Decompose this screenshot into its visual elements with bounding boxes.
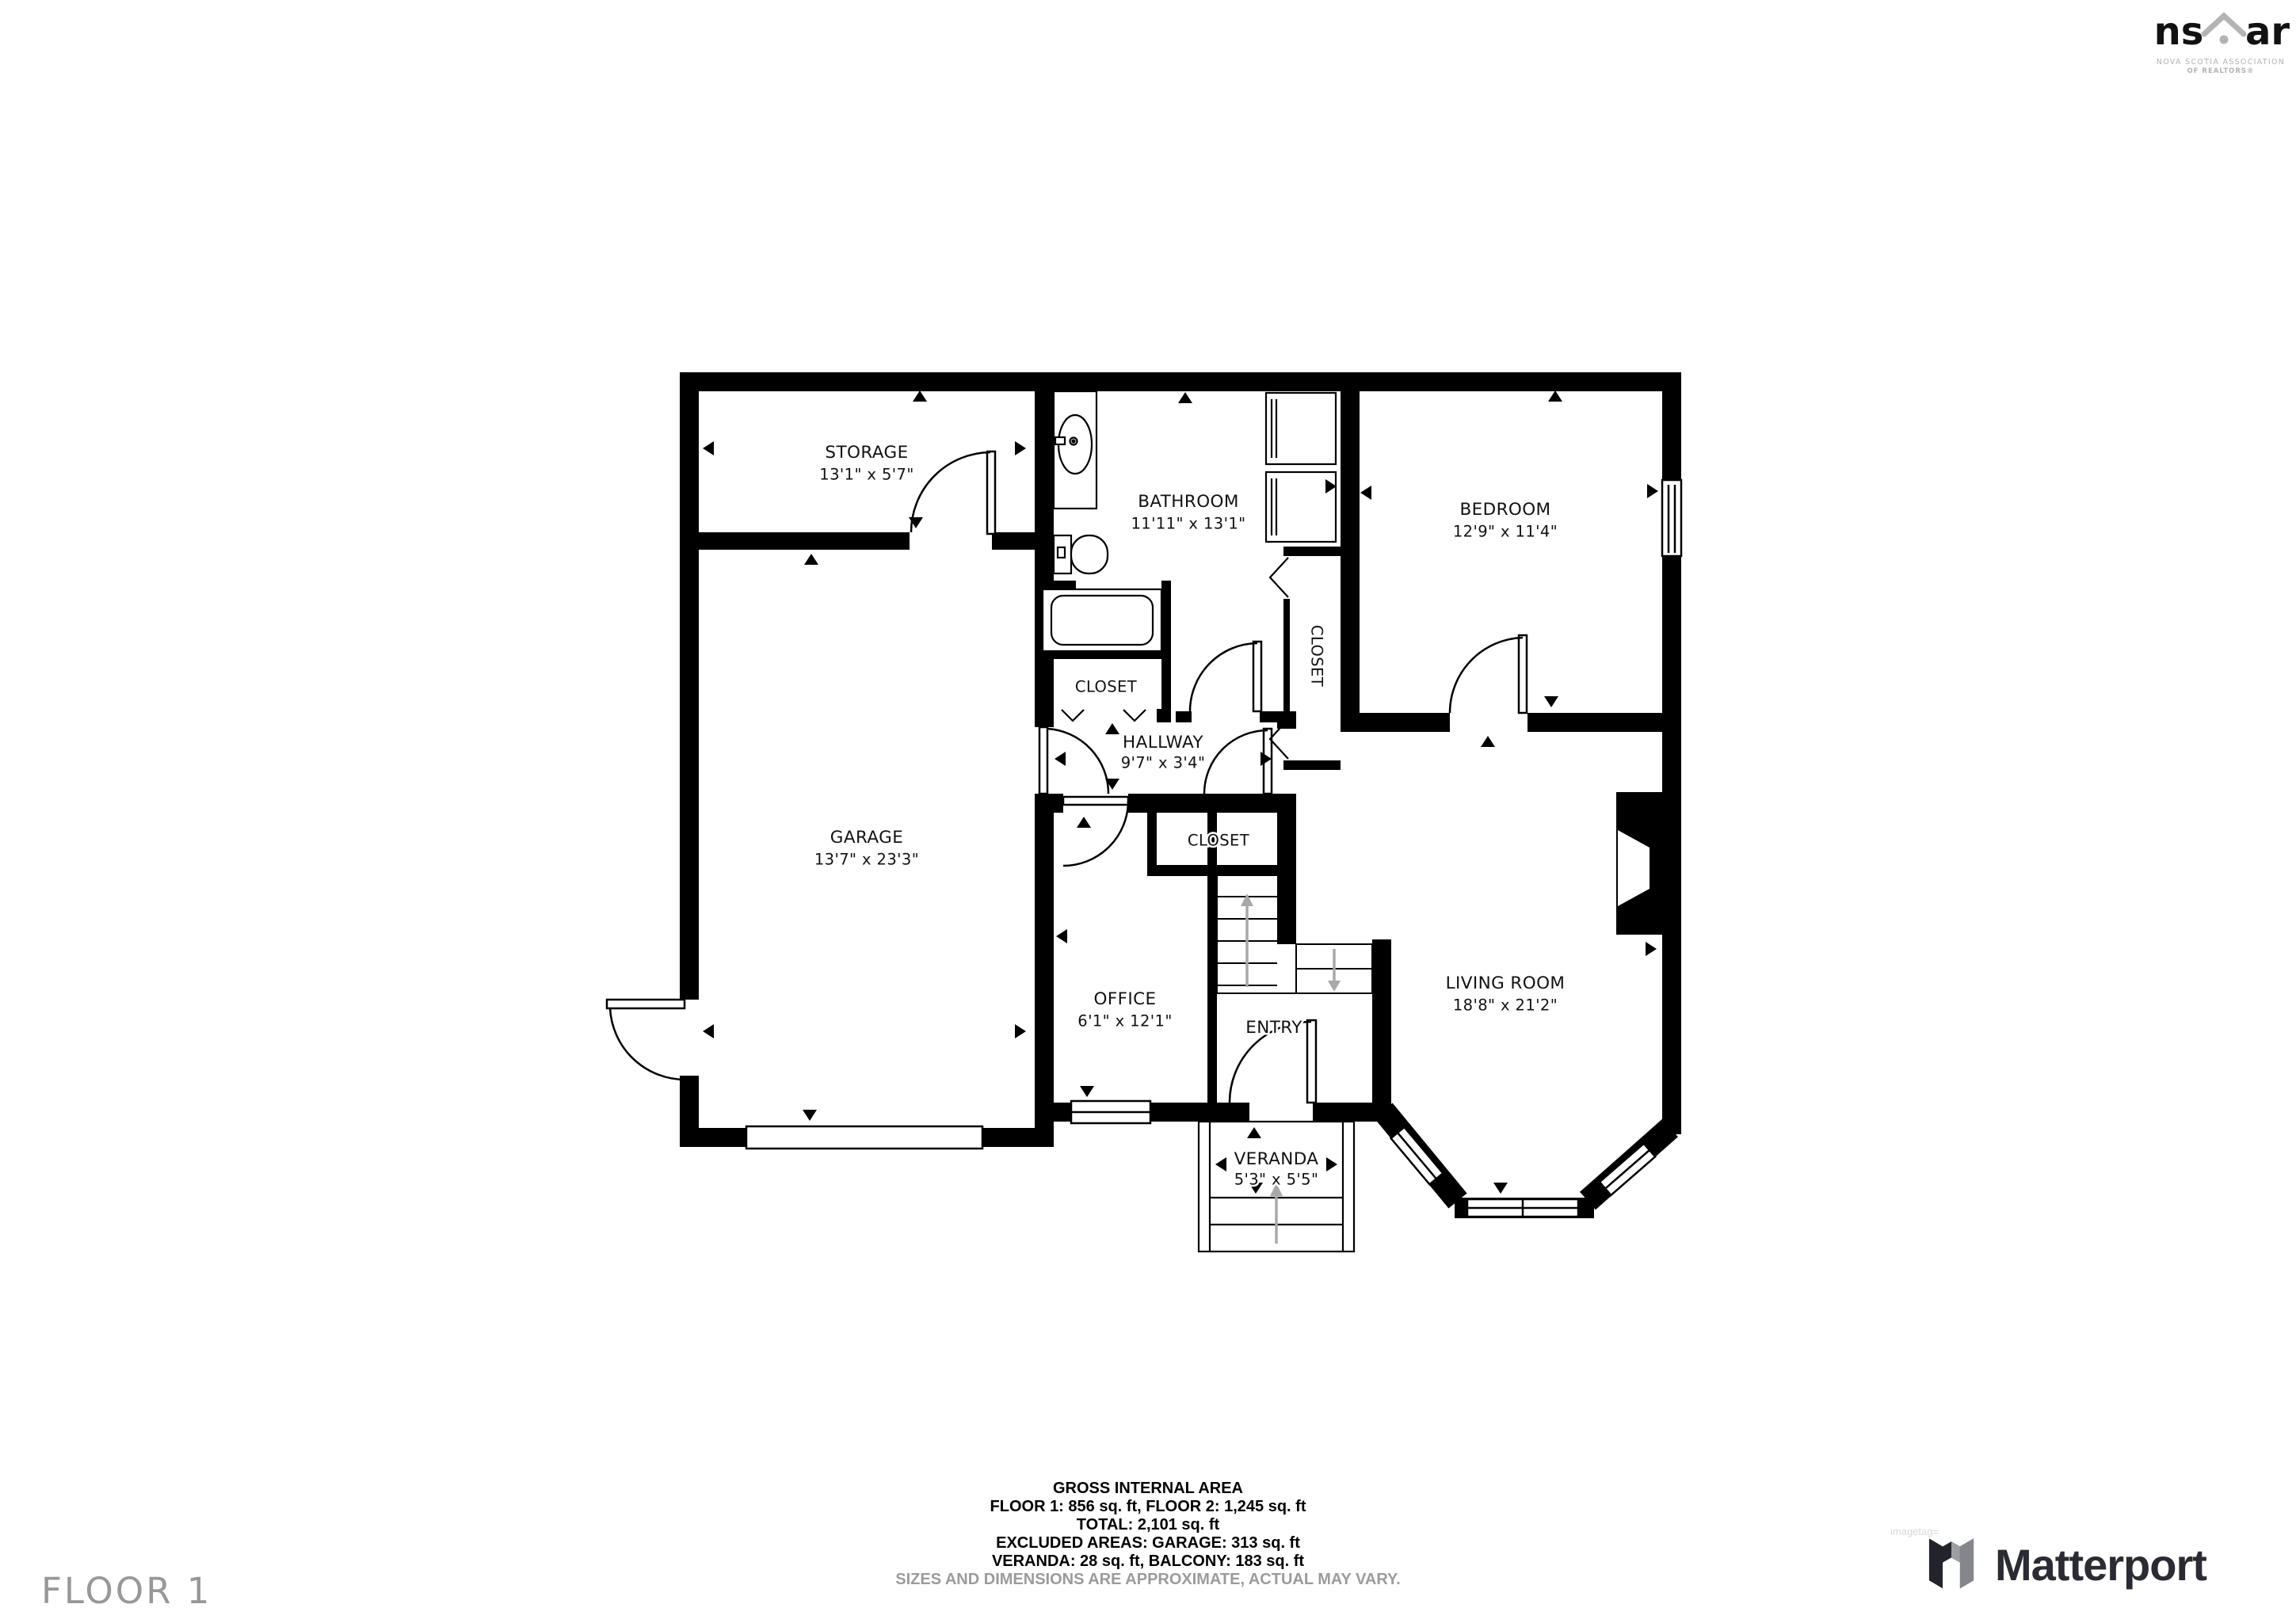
matterport-icon xyxy=(1920,1533,1982,1595)
washer-icon xyxy=(1266,393,1336,464)
nsar-abbr-left: ns xyxy=(2154,10,2204,54)
fireplace-icon xyxy=(1616,792,1681,935)
hallway-dims: 9'7" x 3'4" xyxy=(1121,754,1206,772)
bedroom-window-icon xyxy=(1662,480,1681,556)
floor-areas-line: FLOOR 1: 856 sq. ft, FLOOR 2: 1,245 sq. … xyxy=(0,1498,2296,1516)
storage-label: STORAGE xyxy=(825,443,908,463)
gross-internal-area-title: GROSS INTERNAL AREA xyxy=(0,1480,2296,1498)
room-labels: STORAGE 13'1" x 5'7" BATHROOM 11'11" x 1… xyxy=(814,443,1565,1189)
garage-dims: 13'7" x 23'3" xyxy=(814,851,919,869)
nsar-line2: OF REALTORS® xyxy=(2150,67,2291,75)
veranda-dims: 5'3" x 5'5" xyxy=(1234,1171,1319,1189)
office-door-icon xyxy=(1063,797,1128,866)
office-dims: 6'1" x 12'1" xyxy=(1077,1012,1172,1031)
living-room-label: LIVING ROOM xyxy=(1446,973,1566,993)
closet-bath-label: CLOSET xyxy=(1075,678,1137,696)
closet-hall-label: CLOSET xyxy=(1188,832,1249,850)
garage-label: GARAGE xyxy=(830,828,903,848)
garage-hall-door-icon xyxy=(1039,727,1108,794)
entry-label: ENTRY xyxy=(1245,1018,1302,1038)
nsar-line1: NOVA SCOTIA ASSOCIATION xyxy=(2150,58,2291,67)
house-icon xyxy=(2204,16,2244,44)
nsar-abbr-right: ar xyxy=(2245,10,2290,54)
veranda-label: VERANDA xyxy=(1234,1149,1319,1169)
closet-mid-label: CLOSET xyxy=(1308,625,1326,687)
office-label: OFFICE xyxy=(1094,989,1157,1009)
floor-plan: STORAGE 13'1" x 5'7" BATHROOM 11'11" x 1… xyxy=(0,0,2296,1623)
dryer-icon xyxy=(1266,472,1336,542)
toilet-icon xyxy=(1054,535,1108,573)
total-area-line: TOTAL: 2,101 sq. ft xyxy=(0,1516,2296,1534)
hallway-label: HALLWAY xyxy=(1123,733,1203,752)
bedroom-label: BEDROOM xyxy=(1459,500,1550,520)
nsar-logo-mark: ns ar xyxy=(2150,8,2291,54)
living-room-dims: 18'8" x 21'2" xyxy=(1453,996,1558,1015)
garage-door-icon xyxy=(746,1126,982,1149)
bedroom-dims: 12'9" x 11'4" xyxy=(1453,523,1558,541)
bathtub-icon xyxy=(1043,589,1161,651)
garage-side-door-icon xyxy=(607,1000,685,1080)
sink-icon xyxy=(1054,391,1097,509)
floor-label: FLOOR 1 xyxy=(41,1570,212,1612)
storage-door-icon xyxy=(911,451,995,534)
bay-window-bottom-icon xyxy=(1467,1199,1578,1217)
storage-dims: 13'1" x 5'7" xyxy=(819,466,913,484)
bathroom-label: BATHROOM xyxy=(1138,492,1239,512)
office-window-icon xyxy=(1071,1101,1150,1123)
matterport-name: Matterport xyxy=(1995,1539,2206,1591)
bathroom-dims: 11'11" x 13'1" xyxy=(1131,515,1245,533)
nsar-logo: ns ar NOVA SCOTIA ASSOCIATION OF REALTOR… xyxy=(2150,8,2291,75)
matterport-logo: Matterport xyxy=(1920,1533,2206,1595)
bathroom-door-icon xyxy=(1190,642,1261,711)
bedroom-door-icon xyxy=(1450,635,1527,713)
